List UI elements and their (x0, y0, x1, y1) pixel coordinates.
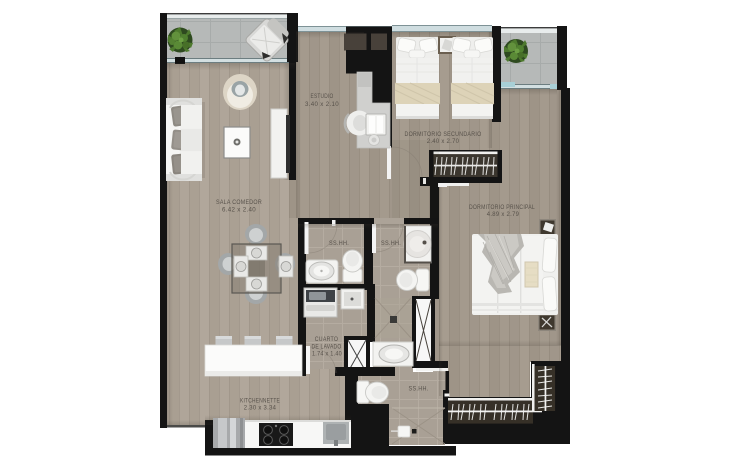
svg-text:6.42 x 2.40: 6.42 x 2.40 (222, 208, 256, 214)
svg-text:1.74 x 1.40: 1.74 x 1.40 (312, 352, 342, 358)
svg-text:SS.HH.: SS.HH. (329, 241, 349, 247)
svg-text:SALA COMEDOR: SALA COMEDOR (216, 200, 262, 206)
svg-text:DORMITORIO SECUNDARIO: DORMITORIO SECUNDARIO (405, 132, 482, 138)
svg-text:SS.HH.: SS.HH. (409, 387, 429, 393)
svg-text:4.89 x 2.79: 4.89 x 2.79 (487, 212, 520, 218)
svg-text:2.40 x 2.70: 2.40 x 2.70 (427, 139, 460, 145)
svg-text:DORMITORIO PRINCIPAL: DORMITORIO PRINCIPAL (469, 205, 535, 211)
svg-text:ESTUDIO: ESTUDIO (311, 94, 334, 100)
svg-text:DE LAVADO: DE LAVADO (312, 345, 342, 351)
svg-text:CUARTO: CUARTO (315, 337, 339, 343)
svg-text:KITCHENNETTE: KITCHENNETTE (240, 398, 280, 404)
svg-text:3.40 x 2.10: 3.40 x 2.10 (305, 102, 339, 108)
svg-text:SS.HH.: SS.HH. (381, 241, 401, 247)
svg-text:2.30 x 3.34: 2.30 x 3.34 (244, 406, 277, 412)
